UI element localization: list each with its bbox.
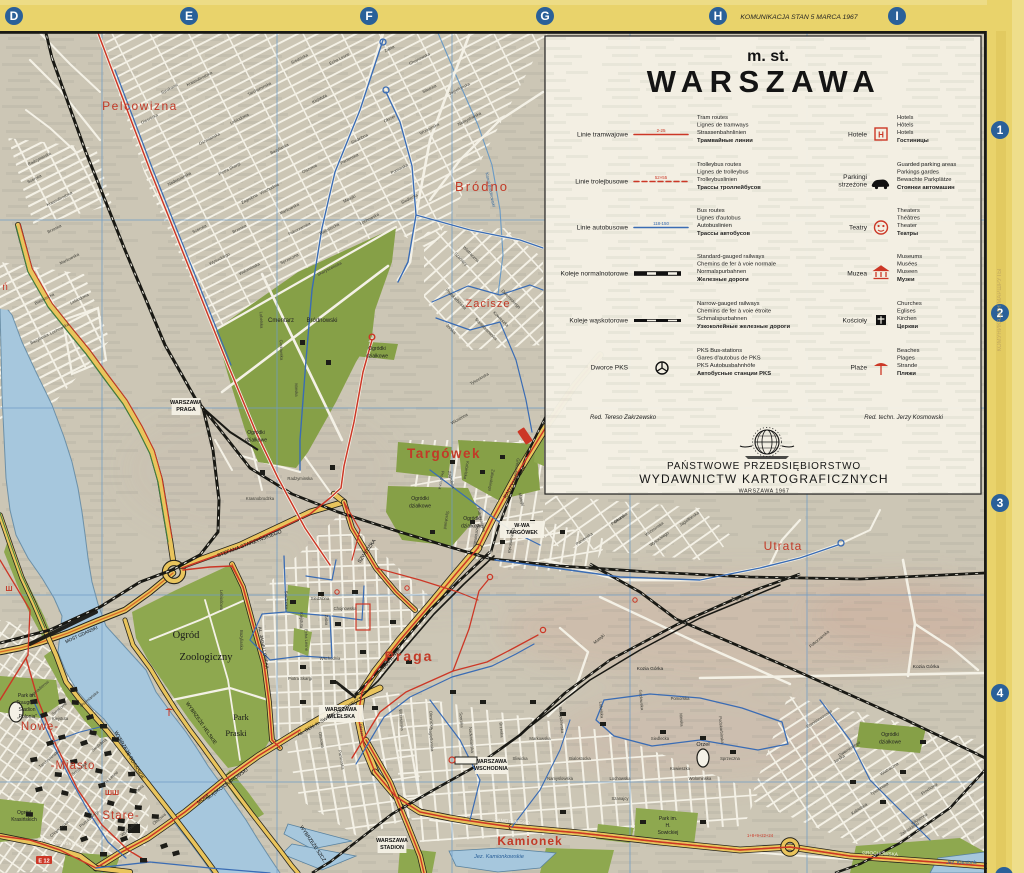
svg-text:Ogródki: Ogródki bbox=[368, 346, 386, 352]
svg-text:działkowe: działkowe bbox=[245, 438, 267, 444]
svg-text:WSCHODNIA: WSCHODNIA bbox=[474, 766, 508, 772]
svg-text:Gocławska: Gocławska bbox=[279, 340, 285, 361]
svg-text:Eglises: Eglises bbox=[897, 309, 916, 315]
svg-text:Kościoły: Kościoły bbox=[842, 318, 867, 325]
svg-text:Targówek: Targówek bbox=[407, 446, 481, 461]
svg-text:Bazyliaska: Bazyliaska bbox=[239, 630, 244, 651]
svg-text:Piotra Skargi: Piotra Skargi bbox=[288, 676, 312, 681]
svg-text:Автобусные станции PKS: Автобусные станции PKS bbox=[697, 370, 771, 377]
svg-text:Pelcowizna: Pelcowizna bbox=[102, 99, 178, 113]
svg-text:Hotels: Hotels bbox=[897, 130, 914, 136]
svg-text:Sowickiej: Sowickiej bbox=[658, 830, 679, 836]
svg-text:Jez. Kamionk.: Jez. Kamionk. bbox=[945, 860, 977, 866]
svg-text:Park: Park bbox=[233, 712, 249, 722]
svg-text:Normalspurbahnen: Normalspurbahnen bbox=[697, 269, 746, 275]
svg-text:Park im.: Park im. bbox=[659, 816, 677, 822]
svg-text:Siedlecka: Siedlecka bbox=[651, 736, 670, 741]
svg-text:Wolominska: Wolominska bbox=[689, 776, 712, 781]
svg-text:Kozia Górka: Kozia Górka bbox=[913, 664, 940, 670]
svg-text:Theaters: Theaters bbox=[897, 208, 920, 214]
svg-text:Kamionek: Kamionek bbox=[497, 834, 562, 848]
svg-text:Red. Tereso Zakrzewsko: Red. Tereso Zakrzewsko bbox=[590, 415, 657, 421]
svg-text:działkowe: działkowe bbox=[366, 354, 388, 360]
svg-text:4: 4 bbox=[997, 686, 1004, 700]
svg-text:Трамвайные линии: Трамвайные линии bbox=[697, 137, 753, 144]
svg-text:Zoologiczny: Zoologiczny bbox=[179, 652, 233, 663]
svg-text:Cmentarz: Cmentarz bbox=[268, 318, 294, 324]
svg-text:WARSZAWA 1967: WARSZAWA 1967 bbox=[739, 489, 790, 495]
svg-text:Kowieszka: Kowieszka bbox=[670, 766, 691, 771]
svg-text:Koleje wąskotorowe: Koleje wąskotorowe bbox=[569, 318, 628, 325]
svg-text:ń: ń bbox=[2, 282, 8, 293]
svg-text:Red. techn. Jerzy Kosmowski: Red. techn. Jerzy Kosmowski bbox=[864, 415, 943, 421]
svg-text:Beaches: Beaches bbox=[897, 348, 920, 354]
svg-text:Zabia: Zabia bbox=[324, 615, 329, 626]
svg-text:Krasińskich: Krasińskich bbox=[11, 817, 37, 823]
svg-text:Orzeł: Orzeł bbox=[696, 742, 710, 748]
svg-text:Pomorska: Pomorska bbox=[671, 696, 691, 701]
svg-text:Ogródki: Ogródki bbox=[411, 496, 429, 502]
svg-text:Wschodnia: Wschodnia bbox=[320, 656, 341, 661]
svg-text:Hotele: Hotele bbox=[848, 132, 867, 139]
svg-text:Namyslowska: Namyslowska bbox=[547, 776, 573, 781]
svg-text:2-25: 2-25 bbox=[657, 128, 666, 133]
svg-text:PKS Bus-stations: PKS Bus-stations bbox=[697, 348, 742, 354]
svg-text:KOMUNIKACJA STAN 5 MARCA 1967: KOMUNIKACJA STAN 5 MARCA 1967 bbox=[740, 14, 857, 21]
svg-text:H: H bbox=[878, 131, 884, 140]
svg-text:Nowe-: Nowe- bbox=[21, 721, 59, 733]
svg-text:D: D bbox=[10, 9, 19, 23]
svg-text:Strande: Strande bbox=[897, 363, 917, 369]
svg-text:Chojnowska: Chojnowska bbox=[334, 606, 357, 611]
svg-text:Пляжи: Пляжи bbox=[897, 371, 916, 377]
svg-text:m. st.: m. st. bbox=[747, 48, 789, 65]
svg-text:Sliwicka: Sliwicka bbox=[512, 756, 528, 761]
svg-text:Sredzicka: Sredzicka bbox=[284, 591, 290, 610]
svg-text:Гостиницы: Гостиницы bbox=[897, 138, 929, 144]
svg-text:Théâtres: Théâtres bbox=[897, 216, 920, 222]
svg-text:Ogródki: Ogródki bbox=[881, 732, 899, 738]
svg-text:Железные дороги: Железные дороги bbox=[696, 277, 749, 283]
svg-text:Театры: Театры bbox=[897, 231, 918, 237]
svg-text:PAŃSTWOWE PRZEDSIĘBIORSTWO: PAŃSTWOWE PRZEDSIĘBIORSTWO bbox=[667, 459, 861, 472]
svg-text:„Polonia”: „Polonia” bbox=[17, 714, 37, 720]
svg-text:Jez. Kamionkowskie: Jez. Kamionkowskie bbox=[473, 854, 524, 860]
svg-text:Plages: Plages bbox=[897, 356, 915, 362]
svg-text:Guarded parking areas: Guarded parking areas bbox=[897, 162, 956, 168]
svg-text:Echa Lesne: Echa Lesne bbox=[304, 629, 310, 652]
svg-text:Autobuslinien: Autobuslinien bbox=[697, 223, 732, 229]
svg-text:Siedzibna: Siedzibna bbox=[311, 596, 330, 601]
svg-text:PKS Autobusbahnhöfe: PKS Autobusbahnhöfe bbox=[697, 363, 755, 369]
svg-text:Lignes d'autobus: Lignes d'autobus bbox=[697, 216, 741, 222]
svg-text:G: G bbox=[540, 9, 549, 23]
svg-text:F: F bbox=[365, 9, 372, 23]
svg-text:Lubelska: Lubelska bbox=[259, 311, 265, 329]
svg-text:H: H bbox=[714, 9, 723, 23]
svg-text:Teatry: Teatry bbox=[849, 225, 868, 232]
svg-text:Kiejstuta: Kiejstuta bbox=[299, 612, 304, 629]
svg-text:Стоянки автомашин: Стоянки автомашин bbox=[897, 185, 955, 191]
svg-text:PRAGA: PRAGA bbox=[176, 407, 196, 413]
svg-text:działkowe: działkowe bbox=[409, 504, 431, 510]
svg-text:Praski: Praski bbox=[225, 728, 247, 738]
svg-text:КОМУНИКАЦИЯ МАРШРУТЫ: КОМУНИКАЦИЯ МАРШРУТЫ bbox=[997, 269, 1003, 352]
svg-text:Trolleybuslinien: Trolleybuslinien bbox=[697, 177, 737, 183]
svg-text:Bus routes: Bus routes bbox=[697, 208, 725, 214]
svg-text:Stadion: Stadion bbox=[19, 707, 36, 713]
svg-text:Lochowska: Lochowska bbox=[610, 776, 632, 781]
svg-text:STADION: STADION bbox=[380, 845, 404, 851]
svg-text:Lebiodowa: Lebiodowa bbox=[219, 590, 224, 611]
svg-text:Церкви: Церкви bbox=[897, 324, 919, 330]
svg-text:3: 3 bbox=[997, 496, 1004, 510]
svg-text:Lignes de trolleybus: Lignes de trolleybus bbox=[697, 170, 749, 176]
svg-text:Schmalspurbahnen: Schmalspurbahnen bbox=[697, 316, 747, 322]
svg-text:WYDAWNICTW KARTOGRAFICZNYCH: WYDAWNICTW KARTOGRAFICZNYCH bbox=[639, 472, 889, 486]
svg-text:Plaże: Plaże bbox=[851, 365, 868, 372]
svg-text:Churches: Churches bbox=[897, 301, 922, 307]
svg-text:Parkings gardes: Parkings gardes bbox=[897, 170, 939, 176]
svg-text:H.: H. bbox=[666, 823, 671, 829]
svg-text:Bialostocka: Bialostocka bbox=[569, 756, 591, 761]
svg-text:Bródnowski: Bródnowski bbox=[306, 318, 337, 324]
svg-text:Hotels: Hotels bbox=[897, 115, 914, 121]
svg-text:Kirchen: Kirchen bbox=[897, 316, 917, 322]
svg-text:Ogródki: Ogródki bbox=[247, 430, 265, 436]
svg-text:Linie trolejbusowe: Linie trolejbusowe bbox=[575, 179, 628, 186]
svg-text:WARSZAWA: WARSZAWA bbox=[170, 400, 202, 406]
svg-text:Mińska: Mińska bbox=[294, 383, 299, 397]
svg-text:Trolleybus routes: Trolleybus routes bbox=[697, 162, 741, 168]
svg-text:Kiejstuta: Kiejstuta bbox=[52, 716, 69, 721]
svg-text:Bródno: Bródno bbox=[455, 179, 509, 194]
svg-text:Chemins de fer à voie étroite: Chemins de fer à voie étroite bbox=[697, 309, 771, 315]
svg-text:Linie autobusowe: Linie autobusowe bbox=[577, 225, 629, 232]
svg-text:Трассы автобусов: Трассы автобусов bbox=[697, 230, 750, 237]
svg-text:52×55: 52×55 bbox=[655, 175, 668, 180]
svg-text:Museums: Museums bbox=[897, 254, 922, 260]
svg-text:ШШ: ШШ bbox=[105, 790, 119, 797]
svg-text:I: I bbox=[895, 9, 898, 23]
svg-text:Krasnobrodzka: Krasnobrodzka bbox=[246, 496, 275, 501]
svg-text:118-150: 118-150 bbox=[653, 221, 669, 226]
svg-text:1: 1 bbox=[997, 123, 1004, 137]
svg-text:Linie tramwajowe: Linie tramwajowe bbox=[577, 132, 628, 139]
svg-text:Szanajcy: Szanajcy bbox=[612, 796, 630, 801]
svg-text:Koleje normalnotorowe: Koleje normalnotorowe bbox=[561, 271, 629, 278]
svg-text:Muzea: Muzea bbox=[847, 271, 867, 278]
svg-text:Tram routes: Tram routes bbox=[697, 115, 728, 121]
svg-text:Kozia Górka: Kozia Górka bbox=[637, 666, 664, 672]
svg-text:Музеи: Музеи bbox=[897, 277, 915, 283]
svg-text:Gares d'autobus de PKS: Gares d'autobus de PKS bbox=[697, 356, 761, 362]
svg-text:Sprzeczna: Sprzeczna bbox=[720, 756, 740, 761]
svg-text:Parkingi: Parkingi bbox=[843, 174, 867, 181]
svg-text:Theater: Theater bbox=[897, 223, 917, 229]
svg-text:Bewachte Parkplätze: Bewachte Parkplätze bbox=[897, 177, 951, 183]
svg-text:Traugutta: Traugutta bbox=[16, 700, 37, 706]
svg-text:Radzyminska: Radzyminska bbox=[287, 476, 313, 481]
svg-text:E 12: E 12 bbox=[38, 859, 49, 865]
svg-text:Musées: Musées bbox=[897, 262, 917, 268]
svg-text:Zacisze: Zacisze bbox=[466, 298, 511, 310]
svg-text:Utrata: Utrata bbox=[764, 539, 803, 553]
svg-text:strzeżone: strzeżone bbox=[838, 182, 867, 189]
svg-text:działkowe: działkowe bbox=[879, 740, 901, 746]
svg-text:1+8+9+22+24: 1+8+9+22+24 bbox=[747, 833, 774, 838]
svg-text:E: E bbox=[185, 9, 193, 23]
svg-text:Ш: Ш bbox=[5, 586, 12, 593]
svg-text:Chemins de fer à voie normale: Chemins de fer à voie normale bbox=[697, 262, 776, 268]
svg-text:Lignes de tramways: Lignes de tramways bbox=[697, 123, 749, 129]
svg-text:Museen: Museen bbox=[897, 269, 918, 275]
svg-text:Narrow-gauged railways: Narrow-gauged railways bbox=[697, 301, 760, 307]
svg-text:Standard-gauged railways: Standard-gauged railways bbox=[697, 254, 764, 260]
svg-text:Ogródki: Ogródki bbox=[463, 516, 481, 522]
svg-text:Трассы троллейбусов: Трассы троллейбусов bbox=[697, 184, 761, 191]
svg-text:Hôtels: Hôtels bbox=[897, 123, 914, 129]
svg-text:Узкоколейные железные дороги: Узкоколейные железные дороги bbox=[697, 323, 790, 330]
svg-text:WARSZAWA: WARSZAWA bbox=[376, 838, 408, 844]
svg-text:Ogród: Ogród bbox=[173, 630, 201, 641]
svg-text:Dworce PKS: Dworce PKS bbox=[591, 365, 629, 372]
svg-text:WARSZAWA: WARSZAWA bbox=[475, 759, 507, 765]
svg-text:Strassenbahnlinien: Strassenbahnlinien bbox=[697, 130, 746, 136]
svg-text:Markowska: Markowska bbox=[529, 736, 551, 741]
svg-text:Zagrobna: Zagrobna bbox=[731, 596, 750, 601]
svg-text:Ogród: Ogród bbox=[17, 810, 31, 816]
svg-text:WARSZAWA: WARSZAWA bbox=[647, 64, 882, 99]
